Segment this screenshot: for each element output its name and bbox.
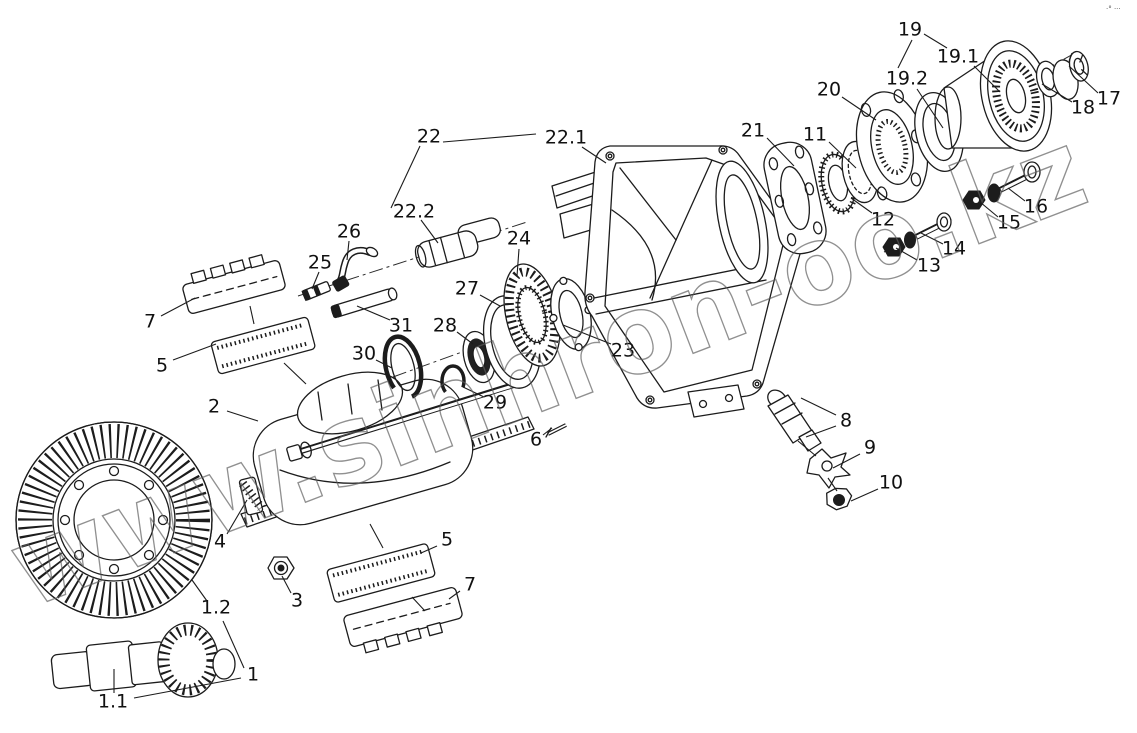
callout-1: 1 — [247, 664, 259, 686]
callout-18: 18 — [1071, 97, 1095, 119]
callout-8: 8 — [840, 410, 852, 432]
callout-5-lower: 5 — [441, 529, 453, 551]
callout-11: 11 — [803, 124, 827, 146]
callout-20: 20 — [817, 79, 841, 101]
callout-7-lower: 7 — [464, 574, 476, 596]
callout-17: 17 — [1097, 88, 1121, 110]
callout-1-2: 1.2 — [201, 597, 231, 619]
callout-1-1: 1.1 — [98, 691, 128, 713]
callout-22-2: 22.2 — [393, 201, 435, 223]
callout-19: 19 — [898, 19, 922, 41]
callout-31: 31 — [389, 315, 413, 337]
callout-3: 3 — [291, 590, 303, 612]
callout-22: 22 — [417, 126, 441, 148]
corner-mark: ·° ··· — [1106, 5, 1121, 13]
callout-2: 2 — [208, 396, 220, 418]
callout-25: 25 — [308, 252, 332, 274]
callout-5-upper: 5 — [156, 355, 168, 377]
callout-21: 21 — [741, 120, 765, 142]
callout-30: 30 — [352, 343, 376, 365]
callout-19-1: 19.1 — [937, 46, 979, 68]
callout-9: 9 — [864, 437, 876, 459]
callout-7-upper: 7 — [144, 311, 156, 333]
callout-27: 27 — [455, 278, 479, 300]
callout-24: 24 — [507, 228, 531, 250]
callout-10: 10 — [879, 472, 903, 494]
callout-26: 26 — [337, 221, 361, 243]
diagram-page: 19 19.1 19.2 20 21 11 12 13 14 15 16 17 … — [0, 0, 1137, 733]
callout-28: 28 — [433, 315, 457, 337]
callout-22-1: 22.1 — [545, 127, 587, 149]
callout-19-2: 19.2 — [886, 68, 928, 90]
exploded-diagram: 19 19.1 19.2 20 21 11 12 13 14 15 16 17 … — [0, 0, 1137, 733]
